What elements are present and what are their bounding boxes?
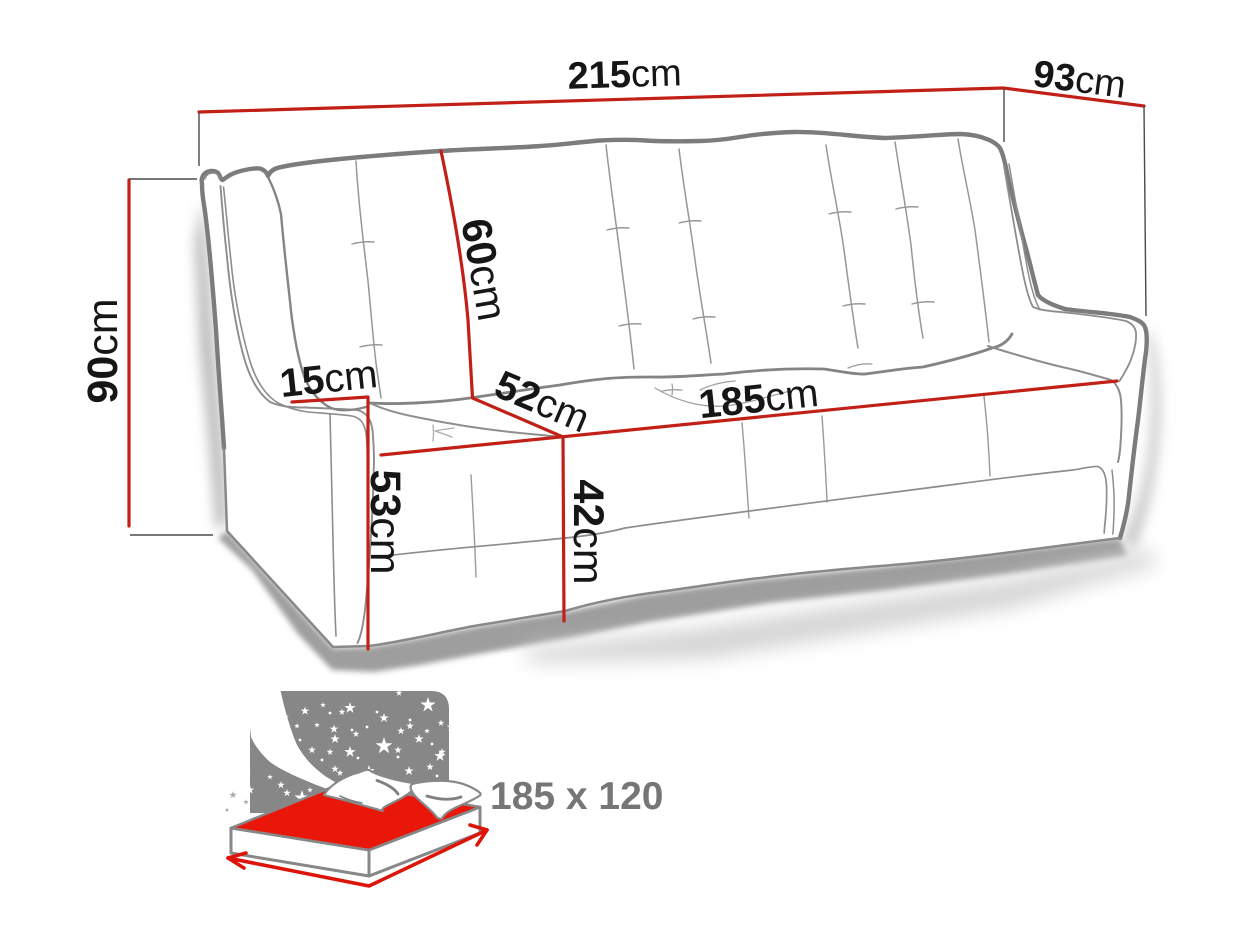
- svg-text:93cm: 93cm: [1031, 53, 1129, 107]
- svg-text:90cm: 90cm: [79, 298, 127, 403]
- svg-text:185 x 120: 185 x 120: [490, 775, 664, 818]
- svg-text:42cm: 42cm: [564, 479, 612, 584]
- svg-text:53cm: 53cm: [361, 469, 409, 574]
- svg-text:215cm: 215cm: [567, 52, 682, 98]
